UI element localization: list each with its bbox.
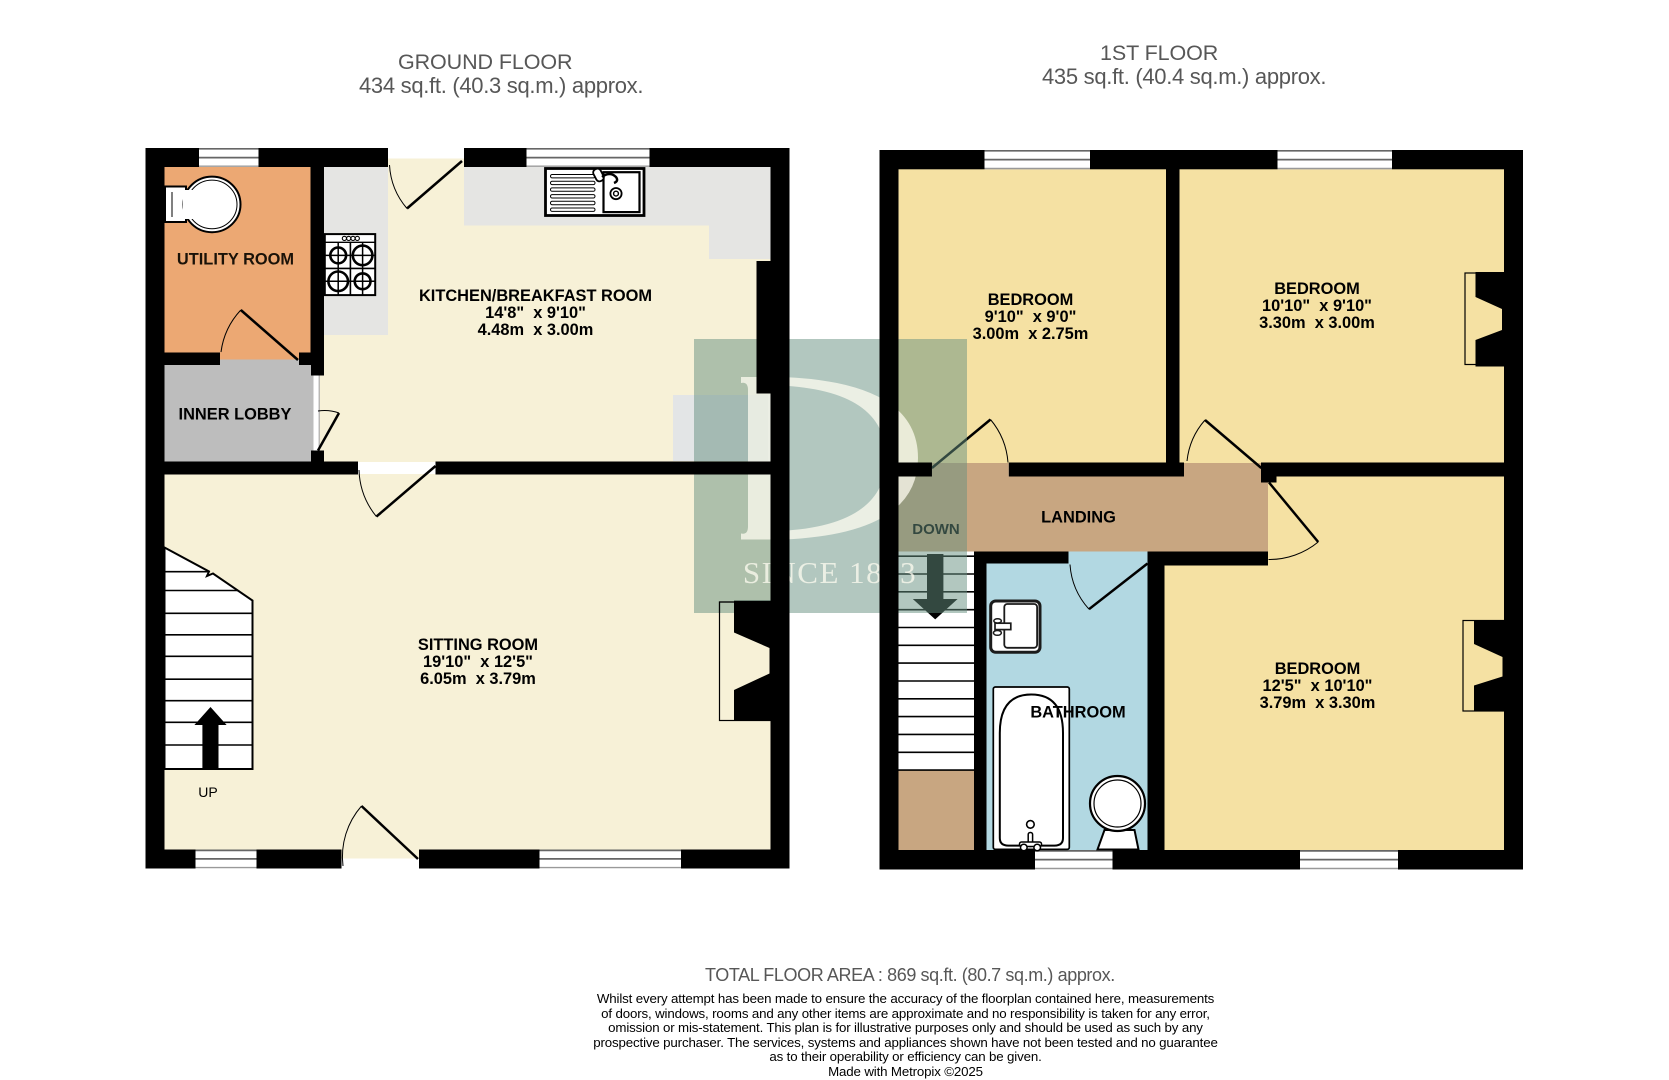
- svg-text:14'8" x 9'10": 14'8" x 9'10": [485, 304, 586, 322]
- svg-text:6.05m x 3.79m: 6.05m x 3.79m: [420, 670, 536, 688]
- svg-text:12'5" x 10'10": 12'5" x 10'10": [1263, 677, 1373, 695]
- svg-text:KITCHEN/BREAKFAST ROOM: KITCHEN/BREAKFAST ROOM: [419, 287, 652, 305]
- svg-text:INNER LOBBY: INNER LOBBY: [179, 406, 292, 424]
- svg-text:3.00m x 2.75m: 3.00m x 2.75m: [973, 325, 1089, 343]
- svg-text:3.79m x 3.30m: 3.79m x 3.30m: [1260, 694, 1376, 712]
- svg-text:3.30m x 3.00m: 3.30m x 3.00m: [1259, 314, 1375, 332]
- svg-text:LANDING: LANDING: [1041, 509, 1116, 527]
- svg-text:SITTING ROOM: SITTING ROOM: [418, 636, 538, 654]
- svg-text:BATHROOM: BATHROOM: [1030, 704, 1125, 722]
- svg-text:UP: UP: [198, 784, 217, 800]
- svg-text:BEDROOM: BEDROOM: [988, 291, 1074, 309]
- svg-text:4.48m x 3.00m: 4.48m x 3.00m: [478, 321, 594, 339]
- svg-text:19'10" x 12'5": 19'10" x 12'5": [423, 653, 533, 671]
- svg-text:BEDROOM: BEDROOM: [1275, 660, 1361, 678]
- svg-text:9'10" x 9'0": 9'10" x 9'0": [985, 308, 1077, 326]
- svg-text:UTILITY ROOM: UTILITY ROOM: [177, 251, 294, 269]
- svg-text:10'10" x 9'10": 10'10" x 9'10": [1262, 297, 1372, 315]
- svg-text:BEDROOM: BEDROOM: [1274, 280, 1360, 298]
